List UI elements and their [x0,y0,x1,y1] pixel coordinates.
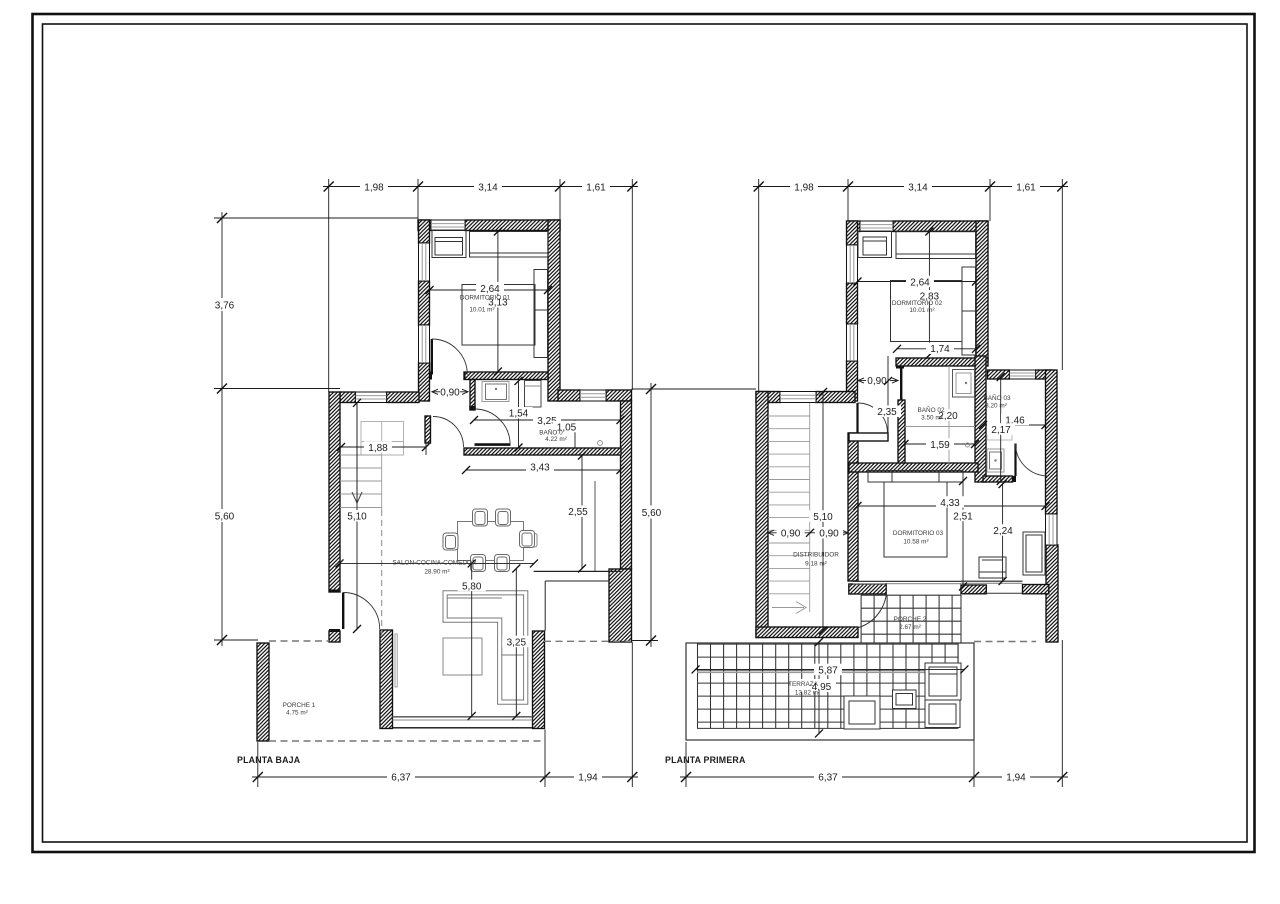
svg-text:PLANTA BAJA: PLANTA BAJA [237,755,301,765]
svg-text:3,14: 3,14 [908,183,928,194]
svg-text:10.01 m²: 10.01 m² [909,307,934,314]
svg-text:1,88: 1,88 [368,443,388,454]
svg-text:6,37: 6,37 [818,773,838,784]
svg-text:PORCHE 1: PORCHE 1 [283,702,316,709]
svg-text:10.01 m²: 10.01 m² [469,307,494,314]
svg-text:DISTRIBUIDOR: DISTRIBUIDOR [793,552,839,559]
svg-text:1,54: 1,54 [509,409,529,420]
svg-text:2,17: 2,17 [991,425,1011,436]
svg-text:DORMITORIO 03: DORMITORIO 03 [893,530,944,537]
svg-text:2,35: 2,35 [877,407,897,418]
svg-text:1,61: 1,61 [586,183,606,194]
svg-text:5,80: 5,80 [462,581,482,592]
svg-text:1,94: 1,94 [578,773,598,784]
svg-text:5,60: 5,60 [215,512,235,523]
svg-text:2,64: 2,64 [910,277,930,288]
svg-text:4.75 m²: 4.75 m² [286,710,308,717]
svg-text:5,10: 5,10 [347,512,367,523]
svg-text:1,74: 1,74 [930,344,950,355]
svg-text:5,10: 5,10 [813,512,833,523]
svg-text:10.58 m²: 10.58 m² [903,539,928,546]
svg-text:1,94: 1,94 [1006,773,1026,784]
svg-text:1,98: 1,98 [364,183,384,194]
svg-text:0,90: 0,90 [440,388,460,399]
svg-text:BAÑO 03: BAÑO 03 [984,393,1011,402]
svg-text:3,43: 3,43 [530,463,550,474]
svg-text:2,55: 2,55 [568,507,588,518]
svg-text:3,14: 3,14 [478,183,498,194]
svg-text:0,90: 0,90 [819,529,839,540]
svg-text:0,90: 0,90 [781,529,801,540]
svg-text:DORMITORIO 02: DORMITORIO 02 [892,300,943,307]
svg-text:2,51: 2,51 [953,511,973,522]
svg-text:6,37: 6,37 [391,773,411,784]
svg-text:28.90 m²: 28.90 m² [424,569,449,576]
svg-text:2,64: 2,64 [480,284,500,295]
svg-text:3,25: 3,25 [507,637,527,648]
svg-text:2,20: 2,20 [938,411,958,422]
svg-text:1,61: 1,61 [1016,183,1036,194]
svg-text:3.20 m²: 3.20 m² [985,403,1007,410]
svg-text:1,59: 1,59 [930,440,950,451]
svg-text:PORCHE 2: PORCHE 2 [894,616,927,623]
svg-text:4.22 m²: 4.22 m² [545,436,567,443]
svg-text:4,33: 4,33 [940,498,960,509]
svg-text:9.18 m²: 9.18 m² [805,561,827,568]
svg-text:5,60: 5,60 [642,508,662,519]
svg-text:2,24: 2,24 [993,526,1013,537]
svg-text:PLANTA PRIMERA: PLANTA PRIMERA [665,755,746,765]
svg-text:5,87: 5,87 [818,665,838,676]
svg-text:3,76: 3,76 [215,301,235,312]
svg-text:13.82 m²: 13.82 m² [795,689,820,696]
svg-text:2.67 m²: 2.67 m² [899,624,921,631]
svg-text:0,90: 0,90 [867,376,887,387]
svg-text:SALON-COCINA-COMEDOR: SALON-COCINA-COMEDOR [392,560,477,567]
svg-text:1,98: 1,98 [794,183,814,194]
